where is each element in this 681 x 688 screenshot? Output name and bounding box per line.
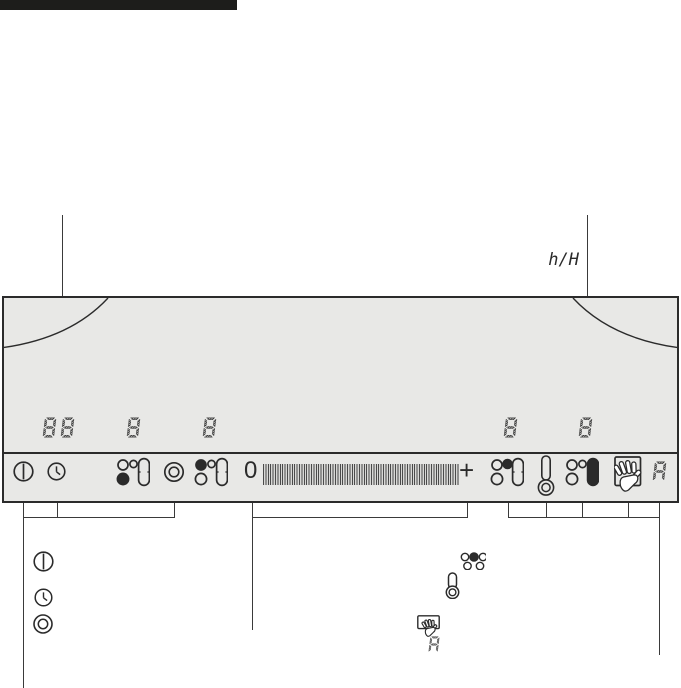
legend-zone-layout-icon [460, 552, 486, 570]
power-display-zone-1 [126, 417, 142, 438]
legend-auto-heatup-indicator [428, 636, 440, 653]
callout-stub-clock [57, 503, 58, 517]
slider-plus-label[interactable]: + [459, 460, 474, 480]
legend-timer-clock-icon [34, 588, 53, 607]
callout-stub-thermometer [546, 503, 547, 517]
callout-bracket-right [508, 517, 660, 518]
page-header-bar [0, 0, 237, 10]
legend-power-icon [33, 551, 54, 572]
callout-line-slider [252, 503, 253, 630]
callout-stub-booster [174, 503, 175, 517]
callout-stub-hand [628, 503, 629, 517]
legend-thermometer-icon [444, 572, 461, 599]
twinbooster-icon[interactable] [162, 460, 186, 484]
legend-twinbooster-icon [32, 613, 54, 635]
callout-stub-plus [467, 503, 468, 517]
auto-heatup-indicator [652, 461, 668, 482]
callout-bracket-slider [252, 517, 468, 518]
timer-unit-label: h/H [535, 250, 579, 270]
zone-select-front-left-icon[interactable] [116, 457, 150, 487]
cooking-zone-arcs [4, 298, 677, 398]
slider-min-label[interactable]: 0 [244, 457, 257, 485]
power-display-zone-3 [503, 417, 519, 438]
residual-heat-thermometer-icon [537, 455, 555, 497]
cooktop-control-panel: 0 + [2, 296, 679, 503]
callout-line-left-group [23, 503, 24, 688]
timer-hours-display [578, 417, 594, 438]
callout-line-right-group [659, 503, 660, 655]
panel-divider-line [4, 452, 677, 454]
zone-select-back-left-icon[interactable] [194, 457, 228, 487]
callout-bracket-left [23, 517, 175, 518]
manual-figure-control-panel: h/H [0, 0, 681, 688]
power-level-slider[interactable] [263, 464, 459, 485]
power-display-zone-2 [202, 417, 218, 438]
callout-stub-zone-right [508, 503, 509, 517]
legend-lock-hand-icon [417, 615, 441, 637]
lock-hand-icon[interactable] [614, 456, 642, 496]
timer-display [42, 417, 76, 438]
timer-clock-icon[interactable] [47, 462, 66, 481]
power-icon[interactable] [13, 461, 34, 482]
zone-select-back-right-icon[interactable] [490, 457, 524, 487]
callout-stub-zone-oval [582, 503, 583, 517]
zone-select-oval-icon[interactable] [565, 457, 599, 487]
